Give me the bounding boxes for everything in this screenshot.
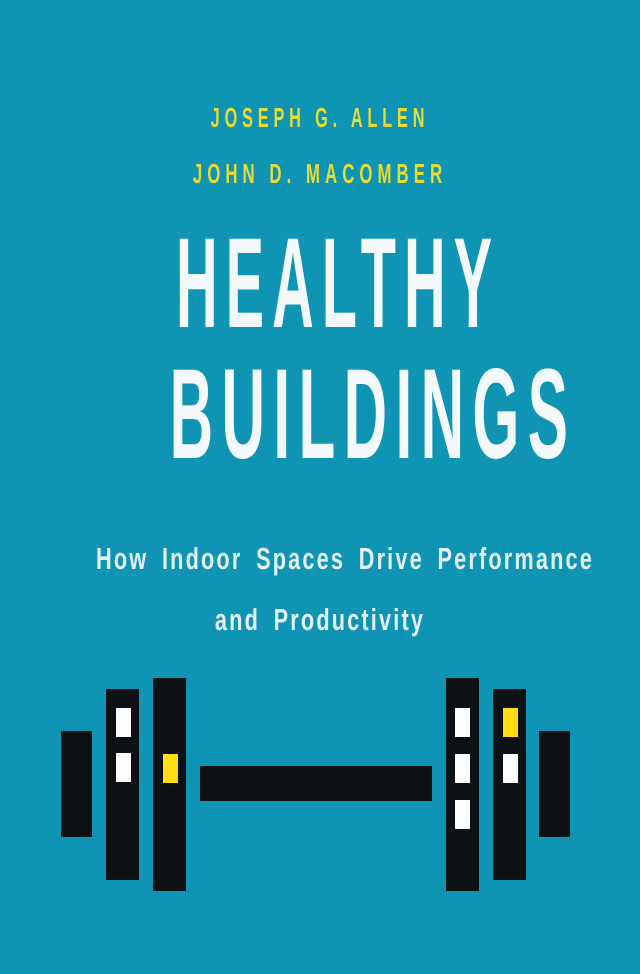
building-plate-3 xyxy=(153,678,186,891)
dumbbell-buildings-illustration xyxy=(0,0,640,974)
building-window-white xyxy=(503,754,518,783)
building-window-white xyxy=(455,708,470,737)
building-plate-6 xyxy=(539,731,570,837)
building-window-yellow xyxy=(163,754,178,783)
building-window-yellow xyxy=(503,708,518,737)
building-plate-1 xyxy=(61,731,92,837)
building-window-white xyxy=(455,754,470,783)
building-window-white xyxy=(116,753,131,782)
book-cover: JOSEPH G. ALLEN JOHN D. MACOMBER HEALTHY… xyxy=(0,0,640,974)
building-window-white xyxy=(116,708,131,737)
dumbbell-bar xyxy=(200,766,432,801)
building-window-white xyxy=(455,800,470,829)
